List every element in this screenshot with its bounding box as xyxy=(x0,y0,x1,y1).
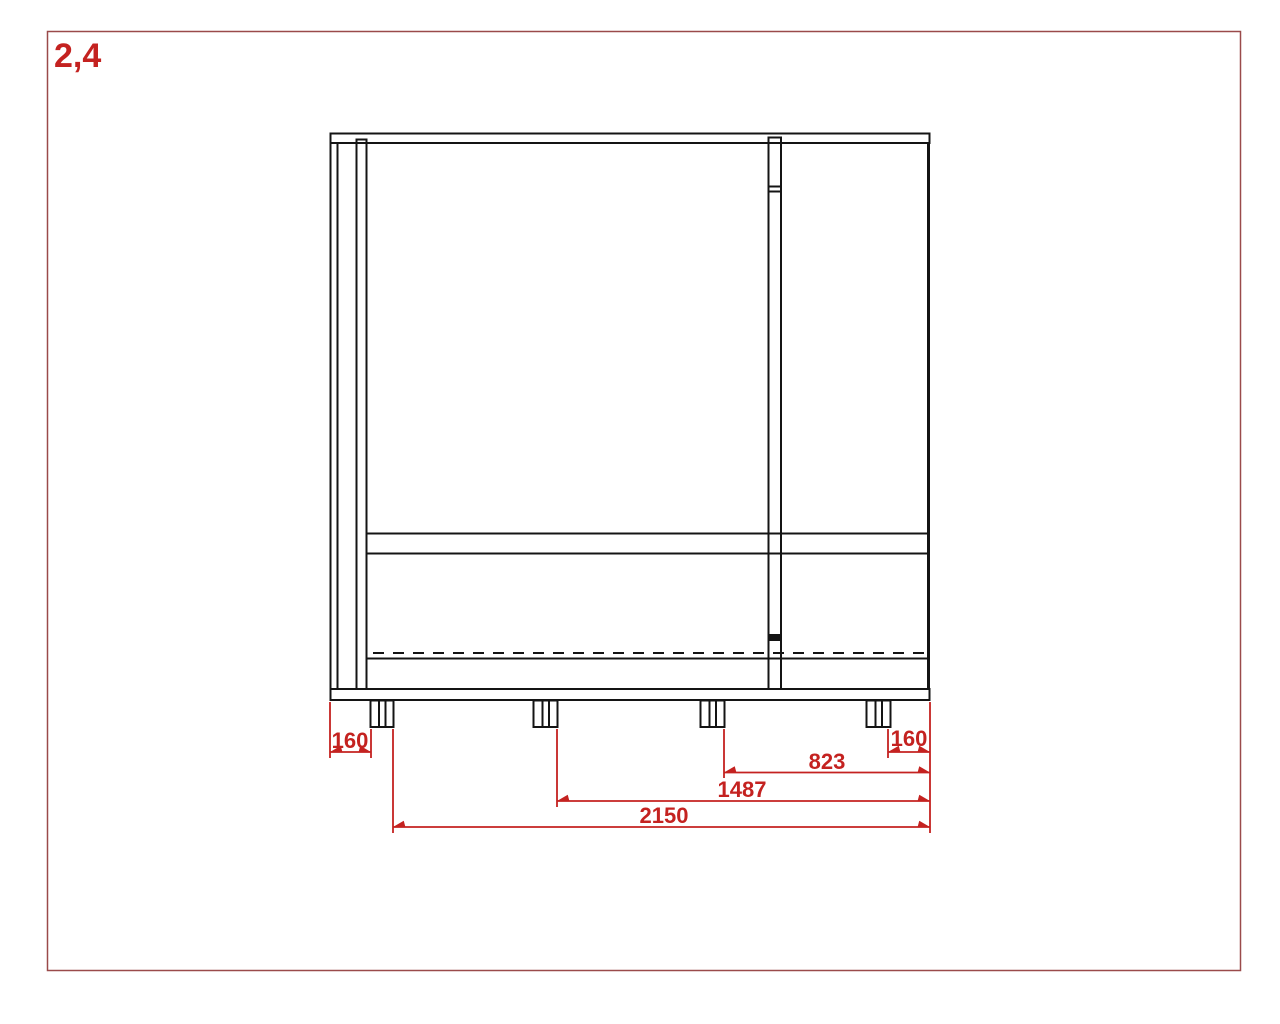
dimension-annotations: 160 160 823 1487 2150 xyxy=(329,702,931,833)
left-stile-post xyxy=(357,140,367,690)
divider-joint-bottom xyxy=(768,634,782,641)
dim-text-left-160: 160 xyxy=(332,728,369,753)
divider-post xyxy=(769,138,782,690)
dim-text-2150: 2150 xyxy=(640,803,689,828)
sheet-label: 2,4 xyxy=(54,37,101,75)
leg-1 xyxy=(371,701,394,728)
cabinet-drawing xyxy=(331,134,930,728)
cad-canvas: 2,4 xyxy=(0,0,1280,1024)
cabinet-bottom-panel xyxy=(331,689,930,700)
leg-4 xyxy=(867,701,891,728)
dim-text-1487: 1487 xyxy=(718,777,767,802)
cabinet-top-panel xyxy=(331,134,930,144)
dim-text-823: 823 xyxy=(809,749,846,774)
leg-3 xyxy=(701,701,725,728)
dim-text-right-160: 160 xyxy=(891,726,928,751)
leg-2 xyxy=(534,701,558,728)
page-border xyxy=(48,32,1241,971)
